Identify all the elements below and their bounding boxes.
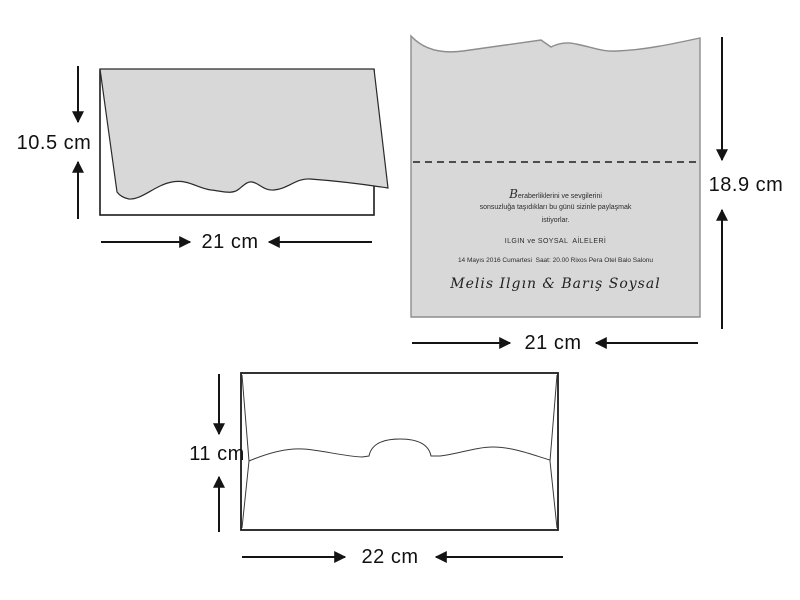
envelope-shape	[241, 373, 558, 530]
folded-card-width-label: 21 cm	[192, 231, 268, 253]
open-card-width-label: 21 cm	[515, 332, 591, 354]
envelope-body	[241, 373, 558, 530]
envelope-width-label: 22 cm	[350, 546, 430, 568]
folded-card-flap	[100, 69, 388, 199]
envelope-height-label: 11 cm	[178, 443, 256, 465]
open-card	[411, 36, 700, 317]
dimensions-diagram: 10.5 cm 21 cm 18.9 cm 21 cm 11 cm 22 cm …	[0, 0, 800, 600]
folded-card-height-label: 10.5 cm	[6, 132, 102, 154]
open-card-height-label: 18.9 cm	[702, 174, 790, 196]
diagram-shapes	[0, 0, 800, 600]
folded-card-shape	[100, 69, 388, 215]
open-card-shape	[411, 36, 700, 317]
